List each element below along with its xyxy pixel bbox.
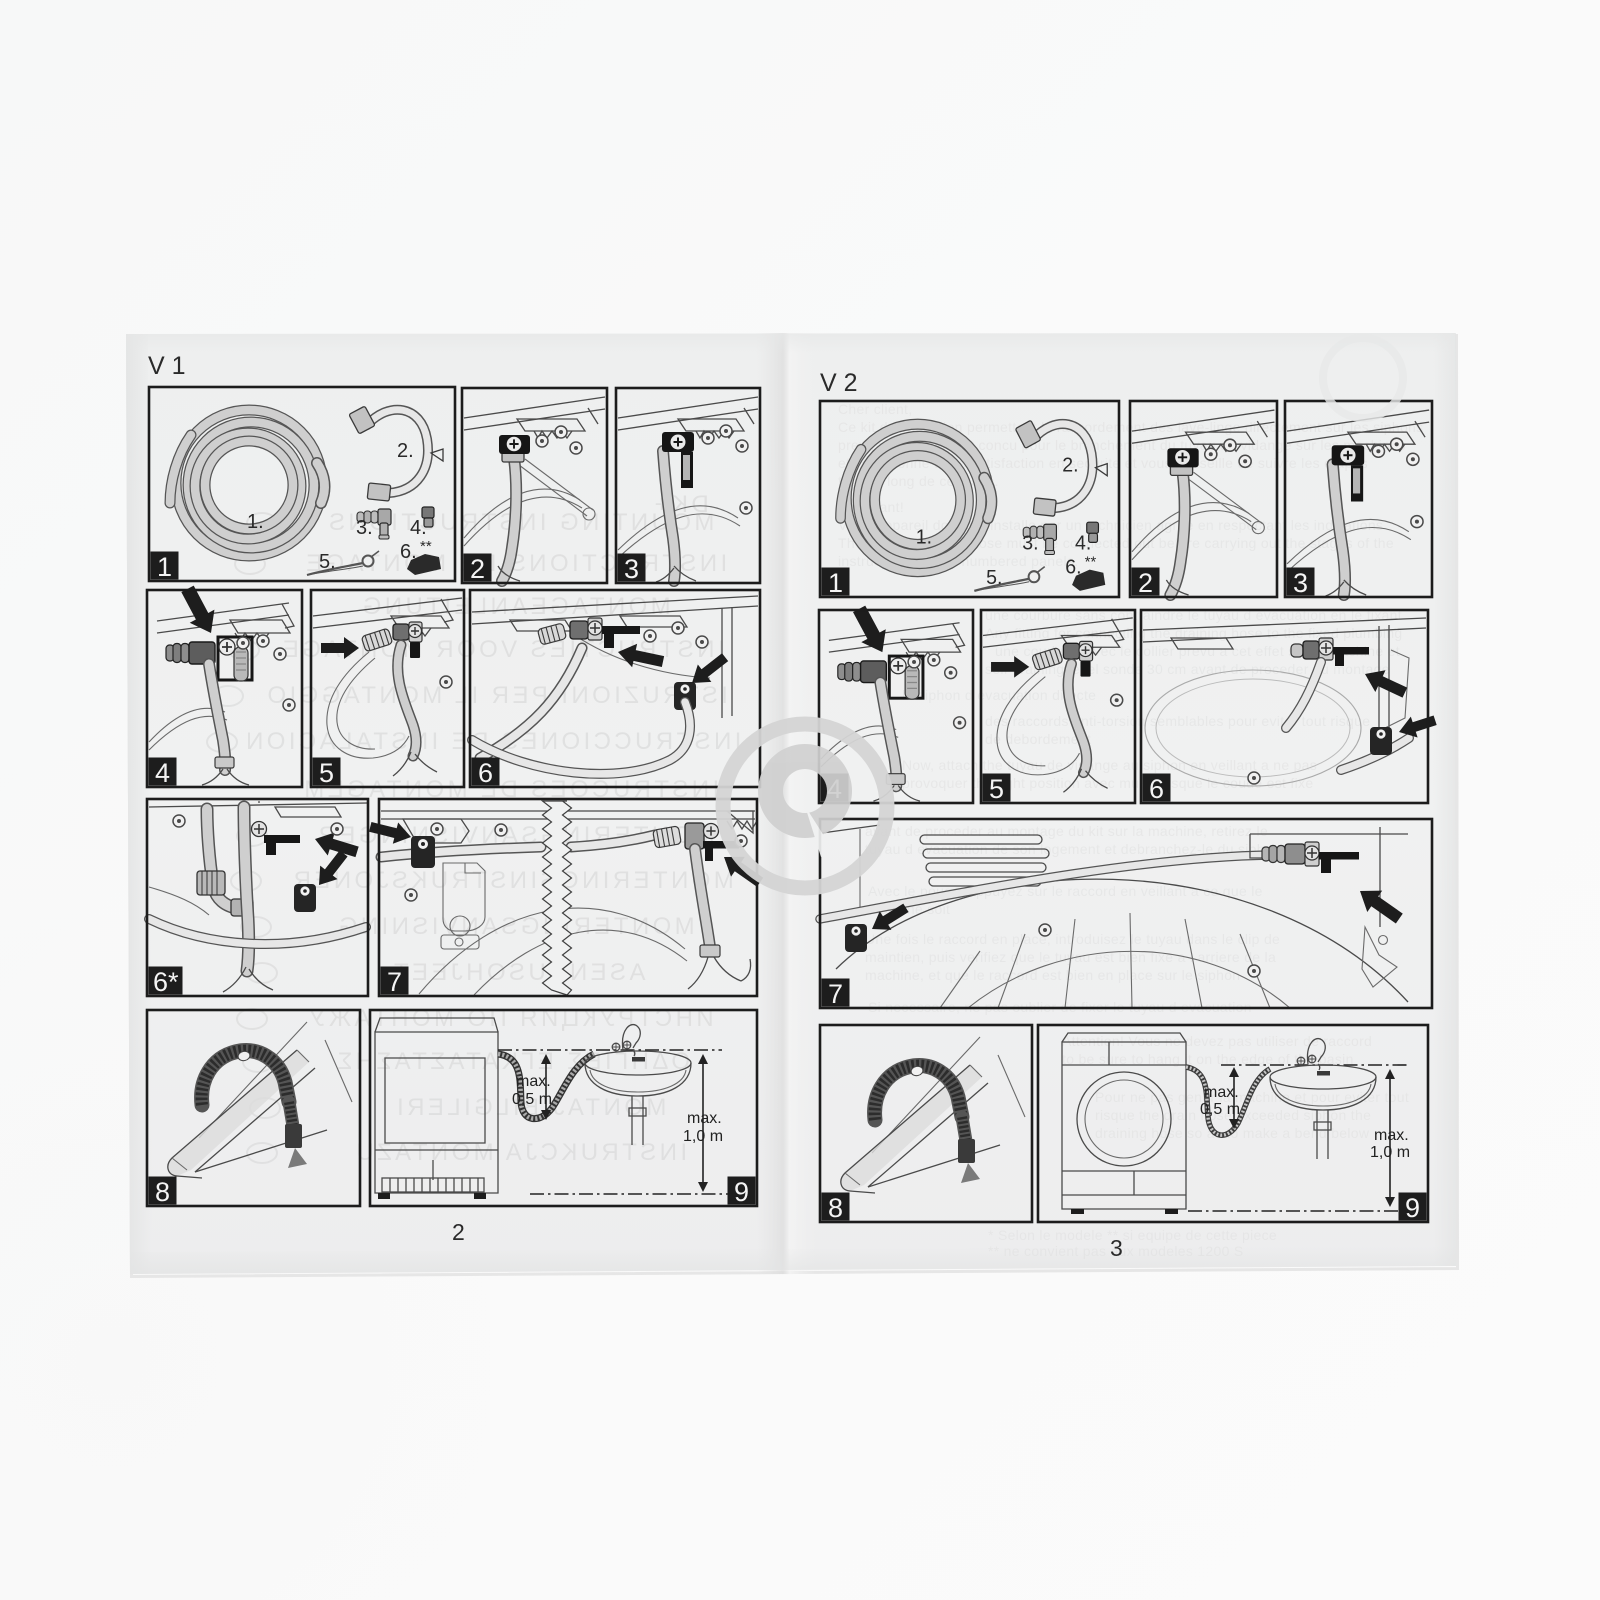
svg-text:5: 5	[319, 758, 334, 788]
svg-text:8: 8	[828, 1193, 843, 1223]
svg-text:6: 6	[478, 758, 493, 788]
svg-text:2: 2	[452, 1219, 465, 1245]
svg-text:3.: 3.	[356, 517, 373, 539]
svg-text:Now, attach the tuyau de vidan: Now, attach the tuyau de vidange au siph…	[902, 757, 1317, 773]
svg-text:5: 5	[989, 774, 1004, 804]
svg-text:7: 7	[828, 979, 843, 1009]
svg-text:avant de proceder au montage d: avant de proceder au montage du kit sur …	[865, 823, 1268, 839]
svg-text:2: 2	[1138, 568, 1153, 598]
svg-text:6: 6	[1149, 774, 1164, 804]
svg-text:des raccords anti-torsion semb: des raccords anti-torsion semblables pou…	[985, 713, 1370, 729]
svg-text:6*: 6*	[153, 967, 179, 997]
svg-text:9: 9	[734, 1177, 749, 1207]
svg-text:4: 4	[155, 758, 170, 788]
svg-text:max.: max.	[687, 1110, 722, 1127]
svg-text:1: 1	[828, 568, 843, 598]
svg-text:3: 3	[624, 554, 639, 584]
svg-text:ISTRUZIONI PER IL MONTAGGIO: ISTRUZIONI PER IL MONTAGGIO	[264, 682, 728, 709]
svg-text:* Selon le modele ** si equi: * Selon le modele ** si equipe de cette …	[988, 1227, 1277, 1243]
svg-text:7: 7	[387, 967, 402, 997]
svg-text:**: **	[420, 538, 432, 555]
svg-text:V 1: V 1	[148, 352, 186, 380]
svg-text:max.: max.	[1374, 1127, 1409, 1144]
svg-text:V 2: V 2	[820, 369, 858, 397]
svg-text:8: 8	[155, 1177, 170, 1207]
svg-text:1: 1	[157, 552, 172, 582]
svg-text:4.: 4.	[410, 517, 427, 539]
svg-text:1.: 1.	[247, 511, 264, 533]
svg-text:3: 3	[1110, 1235, 1123, 1261]
svg-text:machine, et que le raccord est: machine, et que le raccord est bien en p…	[865, 967, 1240, 983]
svg-text:2.: 2.	[397, 440, 414, 462]
svg-text:6.: 6.	[400, 541, 417, 563]
svg-text:9: 9	[1405, 1193, 1420, 1223]
svg-text:2: 2	[470, 554, 485, 584]
svg-text:ASENNUSOHJEET: ASENNUSOHJEET	[391, 959, 646, 986]
svg-text:Cher client,: Cher client,	[838, 401, 912, 417]
svg-text:MONTERINGSINSTRUKSJONER: MONTERINGSINSTRUKSJONER	[290, 867, 734, 894]
svg-text:5.: 5.	[319, 551, 336, 573]
svg-text:3: 3	[1293, 568, 1308, 598]
